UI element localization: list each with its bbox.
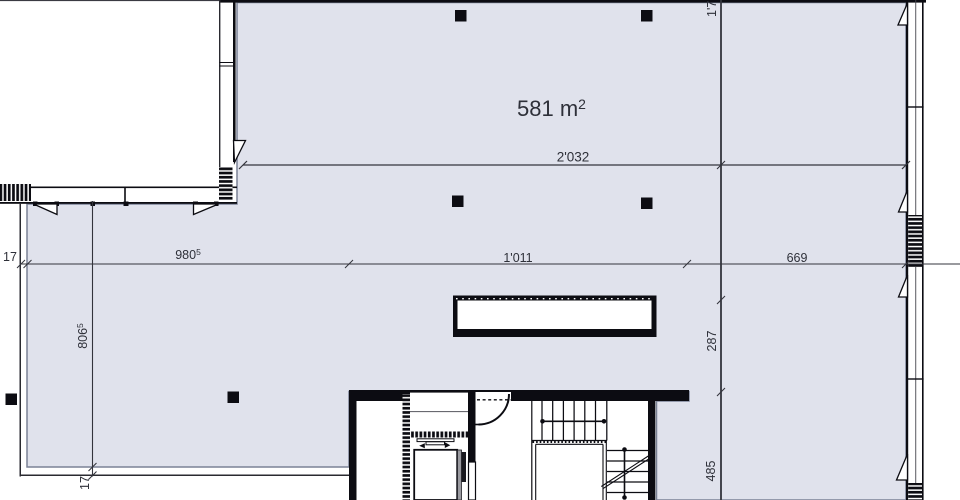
svg-text:1'7: 1'7 [705, 1, 719, 17]
svg-text:2'032: 2'032 [557, 150, 590, 165]
svg-text:669: 669 [787, 251, 808, 265]
svg-text:581 m2: 581 m2 [517, 96, 586, 121]
svg-text:17: 17 [78, 476, 92, 490]
svg-text:1'011: 1'011 [503, 251, 532, 265]
svg-text:485: 485 [704, 461, 718, 482]
svg-text:17: 17 [3, 250, 17, 264]
svg-text:287: 287 [705, 331, 719, 352]
